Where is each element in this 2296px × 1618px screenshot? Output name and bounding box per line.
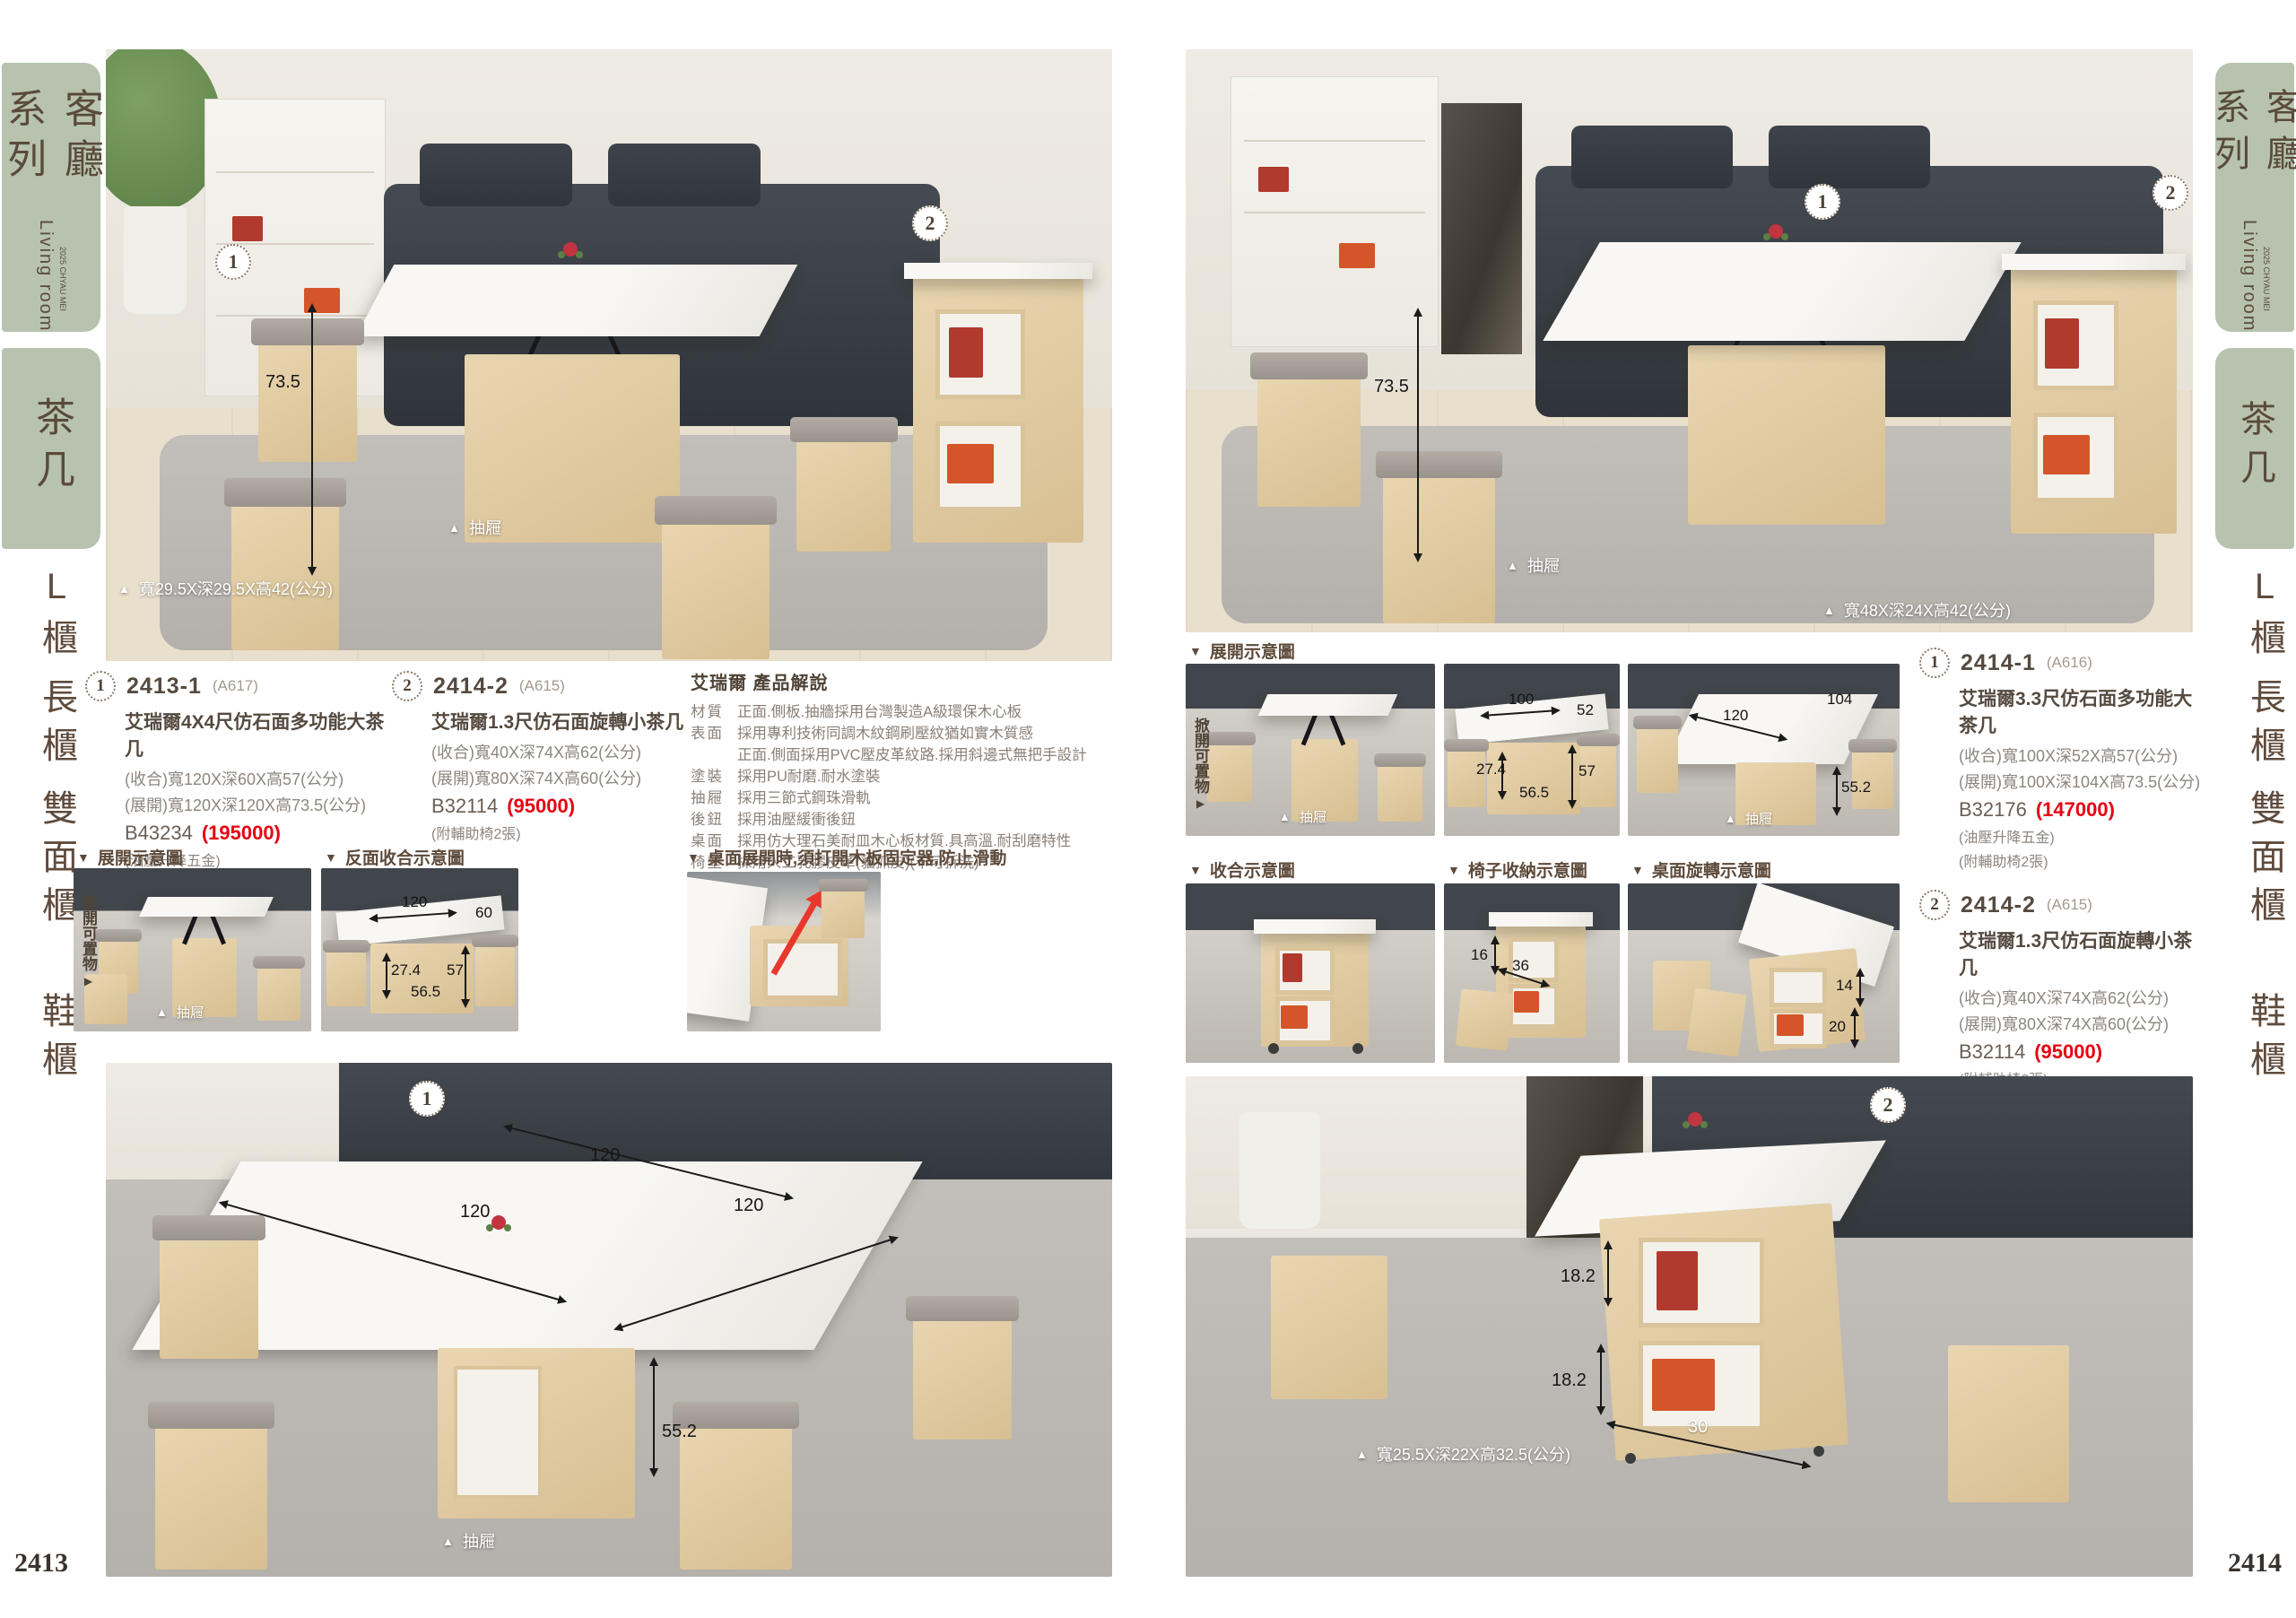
product-info-2414-2-left: 2 2414-2 (A615) 艾瑞爾1.3尺仿石面旋轉小茶几 (收合)寬40X… [392,671,688,846]
diagram-photo-top-rotate: 14 20 [1628,883,1900,1063]
item-badge-2: 2 [912,205,948,241]
stool-cushion [1376,451,1502,478]
stool-cushion [818,879,868,892]
spec-closed: (收合)寬120X深60X高57(公分) [125,767,399,790]
item-badge-2: 2 [1870,1087,1906,1123]
product-name: 艾瑞爾3.3尺仿石面多功能大茶几 [1959,684,2206,738]
side-cart-top [2002,254,2186,270]
diagram-title-text: 展開示意圖 [98,845,183,869]
product-head: 2 2414-2 (A615) [392,671,688,701]
planter-shape [124,206,187,314]
cart-shelf-opening [1770,968,1827,1007]
product-note: (油壓升降五金) [1959,825,2206,847]
stool-shape [796,435,891,552]
dim-left-edge: 120 [460,1202,490,1222]
decor-box [1258,167,1289,192]
spec-open: (展開)寬80X深74X高60(公分) [431,766,688,789]
up-arrow-icon: ▲ [1356,1448,1368,1461]
stool-size-text: 寬48X深24X高42(公分) [1844,598,2011,622]
diagram-photo-reverse-folded: 120 60 27.4 56.5 57 [321,868,518,1031]
stool-shape [326,949,366,1006]
dimension-arrow [1836,768,1838,814]
right-arrow-icon: ▶ [1195,797,1207,810]
decor-box [1777,1014,1804,1036]
model-code: (A616) [2047,654,2092,672]
hero-photo-left: 1 2 73.5 ▲ 抽屜 ▲ 寬29.5X深29.5X高42(公分) [106,49,1112,661]
stool-shape [155,1422,267,1570]
dim-shelf-1: 18.2 [1561,1266,1596,1287]
dim-inner-height: 27.4 [391,961,421,979]
desc-label [691,744,737,766]
price: (195000) [202,822,281,845]
page-number-left: 2413 [14,1548,68,1579]
drawer-label: ▲ 抽屜 [1725,809,1772,828]
series-subtitle-en-right: Living room [2239,220,2259,332]
dim-width: 100 [1509,691,1534,709]
up-arrow-icon: ▲ [156,1005,168,1019]
drawer-label: ▲ 抽屜 [442,1529,495,1553]
series-title: 客廳系列 [0,88,109,205]
stool-shape [1257,372,1361,507]
model-code: (A615) [2047,896,2092,914]
decor-box [1339,243,1375,268]
product-note: (附輔助椅2張) [431,822,688,843]
diagram-title-lock-warning: ▼ 桌面展開時,須打開木板固定器,防止滑動 [687,845,1006,869]
tray-decor [1769,224,1783,239]
description-row: 材質正面.側板.抽牆採用台灣製造A級環保木心板 [691,701,1112,723]
up-arrow-icon: ▲ [442,1535,454,1548]
diagram-title-folded: ▼ 收合示意圖 [1189,857,1295,882]
stool-shape [680,1422,792,1570]
cart-top [1489,912,1593,926]
stool-shape [475,944,515,1006]
down-arrow-icon: ▼ [1448,863,1460,877]
down-arrow-icon: ▼ [1631,863,1644,877]
dim-shelf-width: 36 [1512,957,1529,975]
stool-cushion [790,417,898,442]
stool-cushion [253,956,305,969]
caster-wheel [1625,1453,1636,1464]
dim-b: 20 [1829,1018,1846,1036]
cake-stand-decor [491,1215,506,1230]
spec-closed: (收合)寬40X深74X高62(公分) [1959,986,2206,1009]
dim-depth: 60 [475,904,492,922]
decor-box [949,327,983,378]
side-cart-top [904,263,1092,279]
decor-box [1283,953,1302,982]
diagram-photo-expanded-right: 掀開可置物 ▶ ▲ 抽屜 [1186,664,1435,836]
dim-height: 57 [1578,762,1596,780]
item-badge-2: 2 [392,671,422,701]
dimension-arrow [1494,937,1496,973]
stool-shape [231,498,339,650]
stool-cushion [323,940,370,953]
description-row: 正面.側面採用PVC壓皮革紋路.採用斜邊式無把手設計 [691,744,1112,766]
down-arrow-icon: ▼ [1189,644,1202,658]
shelf-line [216,315,374,317]
flower-decor [1688,1112,1702,1127]
sku: B43234 [125,822,193,845]
spec-open: (展開)寬120X深120X高73.5(公分) [125,793,399,816]
sidebar-active-box-right: 茶几 [2215,348,2294,549]
dim-drawer-height: 55.2 [662,1422,697,1442]
down-arrow-icon: ▼ [687,850,700,865]
stool-cushion [95,929,142,942]
desc-text: 採用專利技術同調木紋鋼刷壓紋猶如實木質感 [737,723,1112,744]
item-badge-2: 2 [1919,890,1950,920]
sidebar-item-shoe-cabinet-right: 鞋櫃 [2239,992,2291,1089]
product-info-2414-1: 1 2414-1 (A616) 艾瑞爾3.3尺仿石面多功能大茶几 (收合)寬10… [1919,648,2206,874]
sidebar-item-long-cabinet-right: 長櫃 [2239,678,2291,775]
drawer-label: ▲ 抽屜 [448,516,501,539]
product-info-2414-2-right: 2 2414-2 (A615) 艾瑞爾1.3尺仿石面旋轉小茶几 (收合)寬40X… [1919,890,2206,1092]
stool-size-label: ▲ 寬25.5X深22X高32.5(公分) [1356,1442,1570,1466]
stool-shape [1207,743,1252,802]
dimension-arrow [1854,1009,1856,1047]
series-subtitle-en: Living room [35,220,56,332]
diagram-title-expanded: ▼ 展開示意圖 [77,845,183,869]
dim-width: 120 [1723,707,1748,725]
stool-shape [1686,987,1746,1057]
up-arrow-icon: ▲ [448,521,460,535]
drawer-label-text: 抽屜 [463,1529,495,1553]
dim-inner-height: 27.4 [1476,761,1506,779]
desc-text: 正面.側板.抽牆採用台灣製造A級環保木心板 [737,701,1112,723]
drawer-label: ▲ 抽屜 [156,1003,204,1022]
height-dimension-arrow [1417,309,1419,561]
dim-shelf-height: 16 [1471,946,1488,964]
dimension-arrow [465,947,466,1006]
down-arrow-icon: ▼ [1189,863,1202,877]
pullout-stool-shape [1456,988,1513,1051]
diagram-photo-expanded: 掀開可置物 ▶ ▲ 抽屜 [74,868,311,1031]
dimension-arrow [1571,746,1573,807]
bottom-photo-right: 2 18.2 18.2 30 ▲ 寬25.5X深22X高32.5(公分) [1186,1076,2193,1577]
decor-box [2045,318,2079,369]
flip-open-label: 掀開可置物 ▶ [77,895,100,1003]
up-arrow-icon: ▲ [1279,810,1291,823]
item-badge-2: 2 [2152,175,2188,211]
dim-inner-width: 56.5 [411,983,440,1001]
dim-inner-width: 56.5 [1519,784,1549,802]
stool-shape [1637,726,1678,793]
desc-text: 採用油壓緩衝後鈕 [737,809,1112,831]
model-number: 2413-1 [126,674,202,700]
diagram-title-text: 桌面展開時,須打開木板固定器,防止滑動 [708,845,1007,869]
model-code: (A617) [213,677,258,695]
price: (147000) [2036,798,2115,822]
up-arrow-icon: ▲ [1507,559,1518,572]
sidebar-active-box-left: 茶几 [2,348,100,549]
caster-wheel [1268,1043,1279,1054]
stool-cushion [472,935,518,947]
stool-cushion [152,1215,265,1240]
decor-box [1514,991,1539,1013]
product-description-block: 艾瑞爾 產品解說 材質正面.側板.抽牆採用台灣製造A級環保木心板 表面採用專利技… [691,668,1112,874]
glass-cabinet-shape [1441,103,1522,354]
flip-open-text: 掀開可置物 [1189,718,1212,794]
spec-closed: (收合)寬100X深52X高57(公分) [1959,744,2206,767]
dim-right-edge: 120 [734,1196,763,1216]
down-arrow-icon: ▼ [325,850,337,865]
stool-shape [257,965,300,1021]
diagram-title-text: 桌面旋轉示意圖 [1652,857,1771,882]
series-subtitle-wrap: Living room 2025 CHYAU MEI [35,220,67,332]
caster-wheel [1813,1446,1824,1457]
product-name: 艾瑞爾4X4尺仿石面多功能大茶几 [125,708,399,761]
stool-size-label: ▲ 寬29.5X深29.5X高42(公分) [118,577,333,600]
desc-label: 表面 [691,723,737,744]
diagram-title-text: 椅子收納示意圖 [1468,857,1587,882]
dim-a: 14 [1836,977,1853,995]
model-number: 2414-2 [1961,892,2036,918]
stool-cushion [1250,352,1368,379]
series-tag-right: 2025 CHYAU MEI [2262,247,2271,332]
height-dimension-value: 73.5 [265,372,300,393]
stool-shape [1271,1256,1387,1399]
table-base-shape [465,354,680,543]
desc-label: 後鈕 [691,809,737,831]
up-arrow-icon: ▲ [1823,604,1835,617]
stool-cushion [224,478,346,507]
description-title: 艾瑞爾 產品解說 [691,668,1112,694]
model-number: 2414-1 [1961,650,2036,676]
stool-shape [160,1233,258,1359]
stool-size-text: 寬25.5X深22X高32.5(公分) [1377,1442,1570,1466]
stool-shape [1383,471,1495,623]
bottom-photo-left: 1 120 120 120 55.2 ▲ 抽屜 [106,1063,1112,1577]
desc-label: 塗裝 [691,766,737,787]
diagram-photo-open-dims-right: 120 104 55.2 ▲ 抽屜 [1628,664,1900,836]
marble-tabletop [356,265,798,336]
stool-size-label: ▲ 寬48X深24X高42(公分) [1823,598,2011,622]
price: (95000) [2034,1040,2102,1064]
open-drawer [454,1366,542,1499]
dimension-arrow [653,1359,655,1475]
item-badge-1: 1 [1919,648,1950,678]
sidebar-item-double-cabinet-right: 雙面櫃 [2239,789,2291,935]
dim-height: 55.2 [1841,779,1871,796]
item-badge-1: 1 [215,244,251,280]
sku-price-line: B32114 (95000) [431,795,688,818]
series-tag: 2025 CHYAU MEI [58,247,67,332]
stool-shape [1378,764,1422,822]
dimension-arrow [1600,1345,1602,1414]
desc-text: 採用PU耐磨.耐水塗裝 [737,766,1112,787]
description-row: 後鈕採用油壓緩衝後鈕 [691,809,1112,831]
dim-back-edge: 120 [590,1145,620,1166]
diagram-title-reverse-folded: ▼ 反面收合示意圖 [325,845,465,869]
stool-shape [913,1314,1012,1440]
spec-open: (展開)寬80X深74X高60(公分) [1959,1012,2206,1035]
diagram-title-stool-storage: ▼ 椅子收納示意圖 [1448,857,1587,882]
description-row: 塗裝採用PU耐磨.耐水塗裝 [691,766,1112,787]
desc-label: 材質 [691,701,737,723]
sofa-headrest [1769,126,1930,188]
shelf-line [216,171,374,173]
dimension-arrow [1607,1242,1609,1305]
diagram-title-expanded-right: ▼ 展開示意圖 [1189,639,1295,663]
dim-depth: 104 [1827,691,1852,709]
diagram-title-top-rotate: ▼ 桌面旋轉示意圖 [1631,857,1771,882]
sidebar-series-box-left: 客廳系列 Living room 2025 CHYAU MEI [2,63,100,332]
stool-cushion [655,496,777,525]
product-name: 艾瑞爾1.3尺仿石面旋轉小茶几 [1959,926,2206,980]
shelf-line [1244,212,1425,213]
stool-cushion [1633,716,1682,729]
diagram-title-text: 收合示意圖 [1210,857,1295,882]
right-arrow-icon: ▶ [83,975,95,987]
decor-box [1652,1359,1715,1411]
planter-shape [1239,1112,1320,1229]
item-badge-1: 1 [409,1081,445,1117]
decor-box [1657,1251,1698,1310]
stool-cushion [1374,753,1426,767]
product-note: (附輔助椅2張) [1959,849,2206,871]
model-code: (A615) [519,677,565,695]
dimension-arrow [386,954,387,997]
dim-depth: 52 [1577,701,1594,719]
stool-shape [662,516,770,659]
dim-shelf-2: 18.2 [1552,1370,1587,1391]
spec-closed: (收合)寬40X深74X高62(公分) [431,740,688,763]
dim-bottom: 30 [1688,1417,1708,1438]
shelf-line [1244,140,1425,142]
sku: B32114 [1959,1040,2025,1064]
stool-shape [258,336,357,462]
diagram-photo-stool-storage: 16 36 [1444,883,1620,1063]
sofa-headrest [608,144,761,206]
stool-cushion [1444,739,1489,752]
sku-price-line: B32114 (95000) [1959,1040,2206,1064]
sidebar-item-l-cabinet-left: L櫃 [30,567,83,667]
stool-cushion [1848,739,1897,752]
decor-box [1281,1005,1308,1029]
drawer-label: ▲ 抽屜 [1279,807,1326,826]
diagram-title-text: 反面收合示意圖 [345,845,465,869]
series-title-right: 客廳系列 [2203,88,2296,205]
item-badge-1: 1 [85,671,116,701]
stool-cushion [1577,734,1620,746]
stool-cushion [906,1296,1019,1321]
sku: B32176 [1959,798,2027,822]
decor-box [2043,435,2090,474]
stool-size-text: 寬29.5X深29.5X高42(公分) [139,577,333,600]
height-dimension-value: 73.5 [1374,377,1409,397]
flower-decor [563,242,578,257]
item-badge-1: 1 [1805,184,1840,220]
drawer-label-text: 抽屜 [1745,809,1772,828]
spec-open: (展開)寬100X深104X高73.5(公分) [1959,770,2206,793]
drawer-label-text: 抽屜 [1300,807,1326,826]
flip-open-label: 掀開可置物 ▶ [1189,718,1212,825]
sidebar-item-tea-table: 茶几 [22,396,80,500]
hero-photo-right: 1 2 73.5 ▲ 抽屜 ▲ 寬48X深24X高42(公分) [1186,49,2193,632]
desc-text: 正面.側面採用PVC壓皮革紋路.採用斜邊式無把手設計 [737,744,1112,766]
page-number-right: 2414 [2219,1548,2282,1579]
sku-price-line: B43234 (195000) [125,822,399,845]
flip-open-text: 掀開可置物 [77,895,100,971]
up-arrow-icon: ▲ [1725,812,1736,825]
stool-cushion [148,1402,274,1429]
diagram-title-text: 展開示意圖 [1210,639,1295,663]
description-row: 表面採用專利技術同調木紋鋼刷壓紋猶如實木質感 [691,723,1112,744]
price: (95000) [507,795,575,818]
sofa-headrest [1571,126,1733,188]
height-dimension-arrow [311,305,313,574]
desc-label: 抽屜 [691,787,737,809]
decor-box [232,216,263,241]
diagram-photo-folded [1186,883,1435,1063]
sidebar-item-l-cabinet-right: L櫃 [2239,567,2291,667]
marble-tabletop [1543,242,2022,341]
sku-price-line: B32176 (147000) [1959,798,2206,822]
sidebar-series-box-right: 客廳系列 Living room 2025 CHYAU MEI [2215,63,2294,332]
dim-width: 120 [402,893,427,911]
drawer-label-text: 抽屜 [177,1003,204,1022]
stool-cushion [251,318,364,345]
series-subtitle-wrap-right: Living room 2025 CHYAU MEI [2239,220,2271,332]
diagram-photo-closed-dims-right: 100 52 27.4 56.5 57 [1444,664,1620,836]
product-name: 艾瑞爾1.3尺仿石面旋轉小茶几 [431,708,688,735]
product-head: 1 2413-1 (A617) [85,671,399,701]
sidebar-item-long-cabinet-left: 長櫃 [30,678,83,775]
diagram-photo-lock-warning [687,872,881,1031]
product-head: 2 2414-2 (A615) [1919,890,2206,920]
dimension-arrow [1859,970,1861,1005]
product-head: 1 2414-1 (A616) [1919,648,2206,678]
stool-shape [1948,1345,2069,1502]
table-base-shape [1688,345,1885,525]
description-row: 抽屜採用三節式鋼珠滑軌 [691,787,1112,809]
display-cabinet-shape [1231,76,1439,347]
catalog-spread: 客廳系列 Living room 2025 CHYAU MEI 茶几 L櫃 長櫃… [0,0,2296,1618]
drawer-label: ▲ 抽屜 [1507,553,1560,577]
down-arrow-icon: ▼ [77,850,90,865]
model-number: 2414-2 [433,674,509,700]
drawer-label-text: 抽屜 [1527,553,1560,577]
marble-tabletop [1258,694,1398,716]
dim-height: 57 [447,961,464,979]
cart-top [1254,919,1376,934]
caster-wheel [1352,1043,1363,1054]
decor-box [947,444,994,483]
drawer-label-text: 抽屜 [469,516,501,539]
marble-tabletop [139,897,274,917]
up-arrow-icon: ▲ [118,582,130,596]
desc-text: 採用三節式鋼珠滑軌 [737,787,1112,809]
sku: B32114 [431,795,498,818]
sidebar-item-tea-table-right: 茶几 [2229,400,2281,497]
sofa-headrest [420,144,572,206]
